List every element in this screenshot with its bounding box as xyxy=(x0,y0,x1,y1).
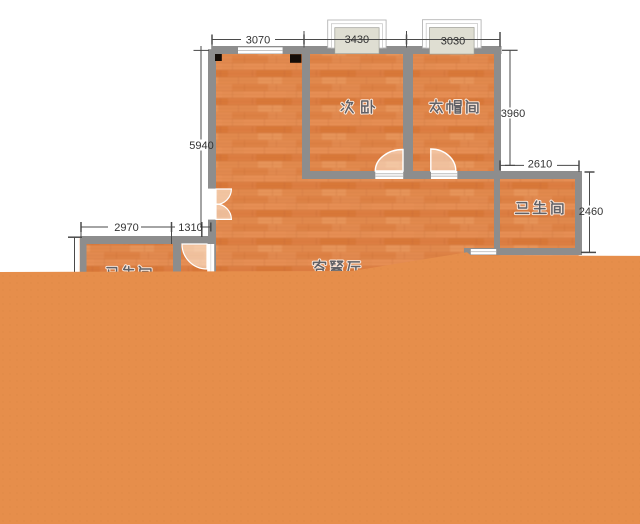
svg-text:2460: 2460 xyxy=(579,206,603,218)
svg-text:5940: 5940 xyxy=(189,140,213,152)
svg-text:1310: 1310 xyxy=(178,222,202,234)
svg-text:2610: 2610 xyxy=(528,158,552,170)
svg-text:2970: 2970 xyxy=(114,222,138,234)
svg-text:3960: 3960 xyxy=(501,108,525,120)
svg-text:3030: 3030 xyxy=(441,36,465,48)
svg-text:3070: 3070 xyxy=(246,35,270,47)
svg-text:3430: 3430 xyxy=(345,34,369,46)
